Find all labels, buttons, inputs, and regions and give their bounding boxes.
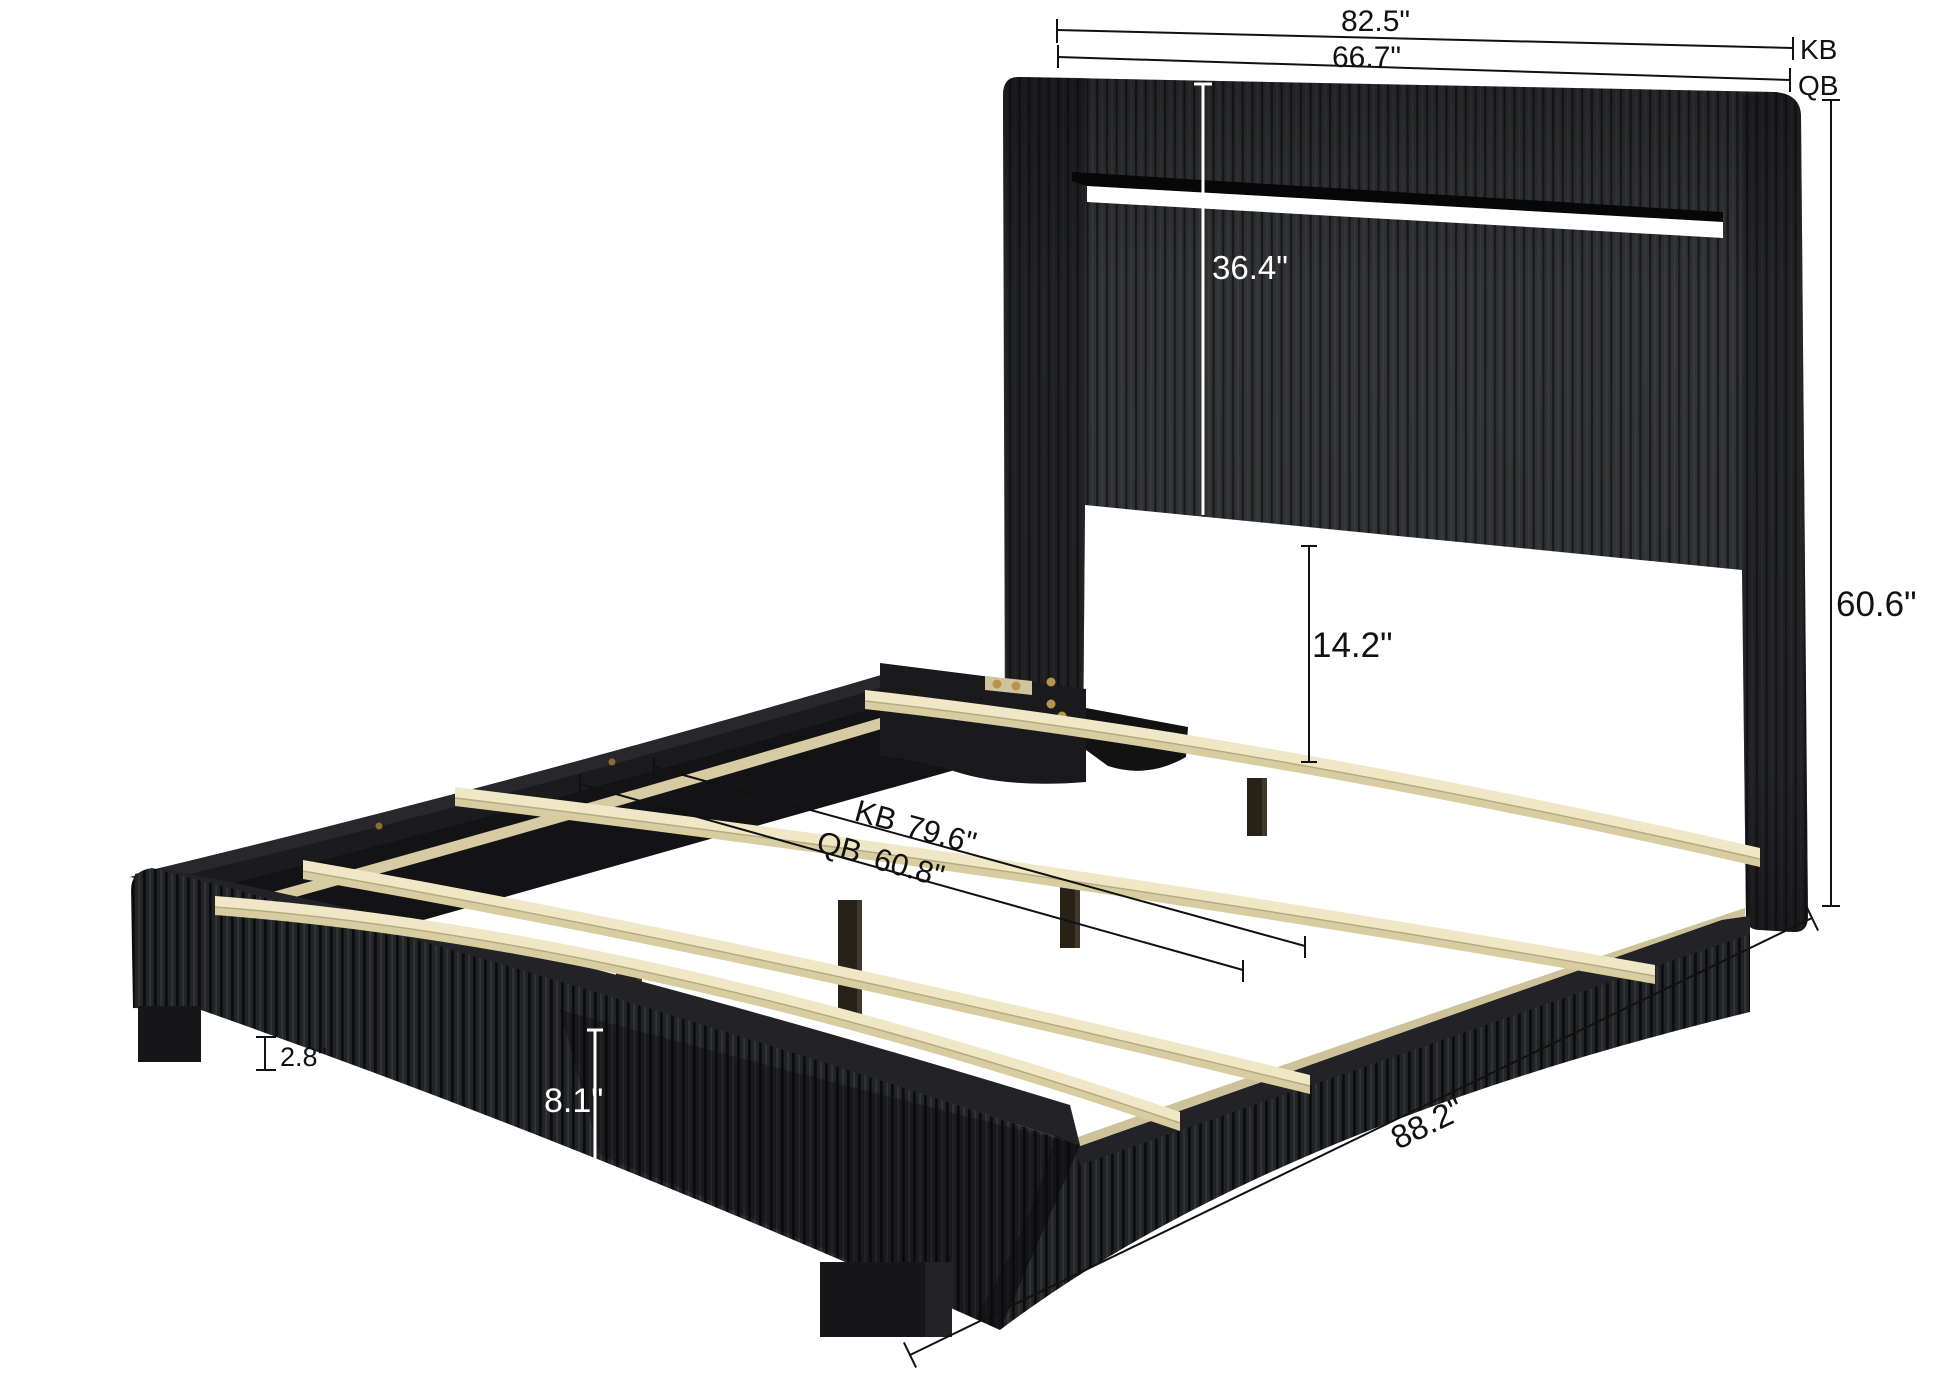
svg-text:QB: QB — [1798, 70, 1838, 101]
svg-text:60.6": 60.6" — [1836, 585, 1917, 624]
svg-text:KB: KB — [1800, 34, 1837, 65]
svg-text:8.1": 8.1" — [544, 1082, 603, 1120]
svg-text:2.8": 2.8" — [280, 1042, 327, 1072]
svg-text:66.7": 66.7" — [1332, 41, 1401, 74]
svg-text:36.4": 36.4" — [1212, 249, 1288, 286]
svg-text:82.5": 82.5" — [1341, 5, 1410, 38]
svg-text:14.2": 14.2" — [1312, 626, 1393, 665]
